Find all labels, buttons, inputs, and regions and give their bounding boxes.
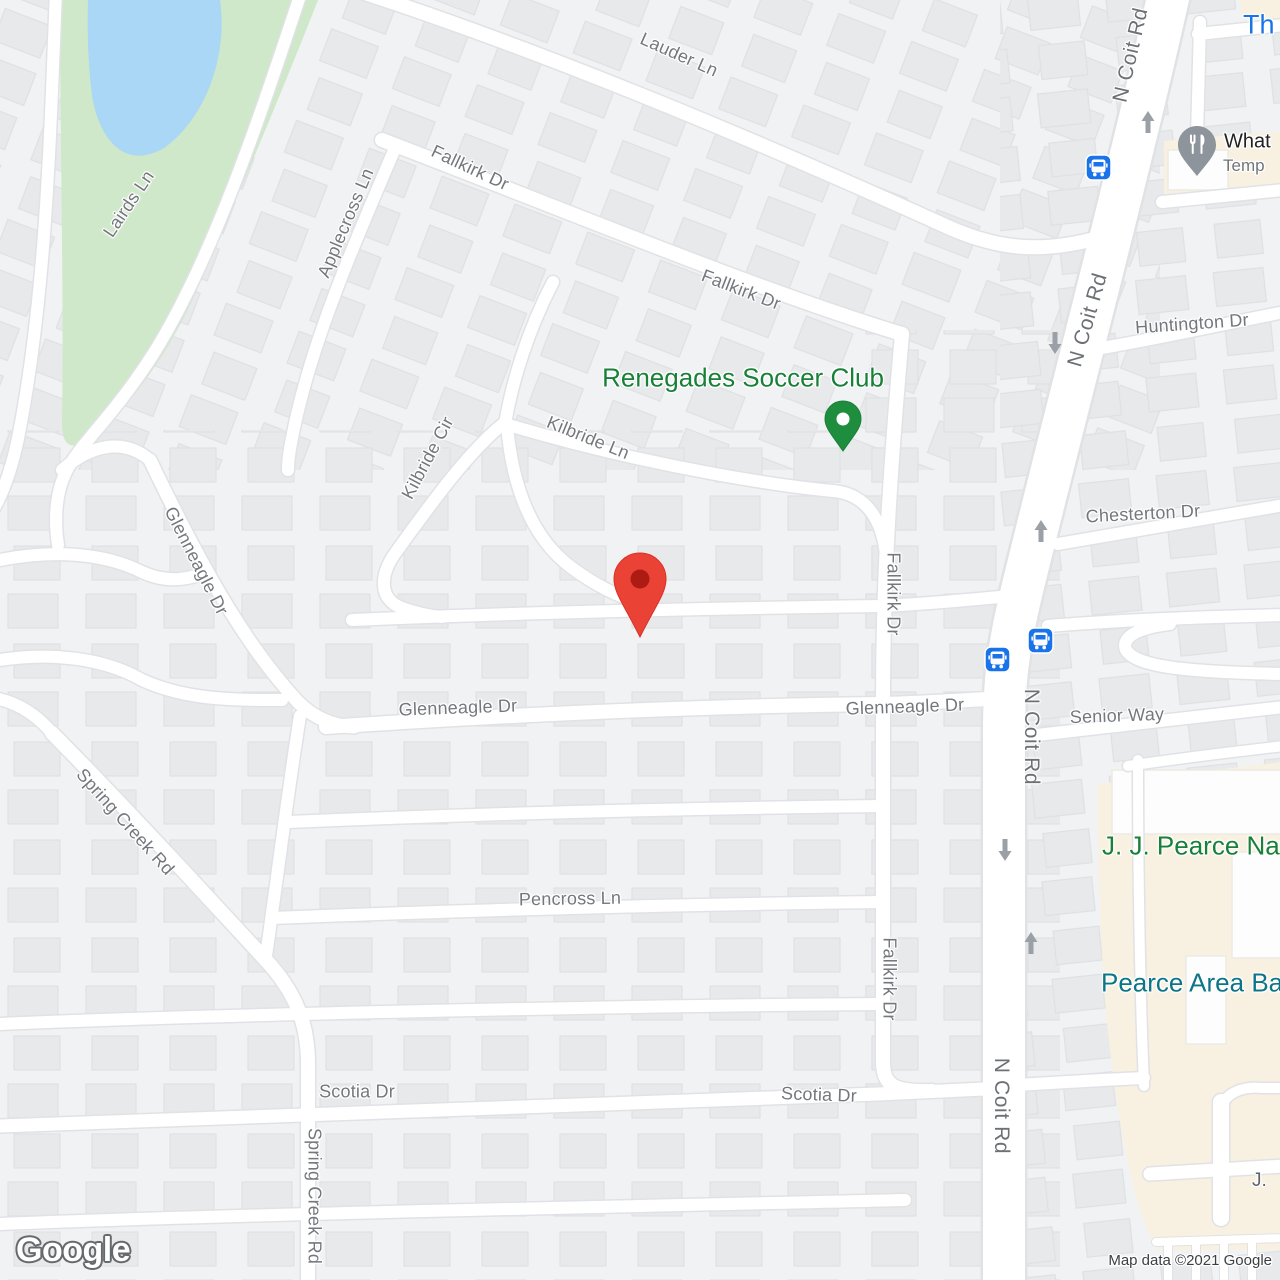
poi-label-renegades-soccer-club[interactable]: Renegades Soccer Club xyxy=(602,363,884,394)
poi-label-pearce-natatorium[interactable]: J. J. Pearce Natat xyxy=(1102,831,1280,862)
street-label-scotia-dr-west: Scotia Dr xyxy=(319,1082,395,1103)
street-label-pencross-ln: Pencross Ln xyxy=(519,888,622,911)
bus-stop-icon[interactable] xyxy=(1085,154,1112,186)
poi-label-truncated-top-right[interactable]: Th xyxy=(1243,10,1275,41)
poi-label-restaurant-name[interactable]: What xyxy=(1224,131,1271,154)
poi-label-pearce-area[interactable]: Pearce Area Ba xyxy=(1101,968,1280,999)
bus-stop-icon[interactable] xyxy=(1027,627,1054,659)
map-viewport[interactable]: Lauder Ln Fallkirk Dr Fallkirk Dr Applec… xyxy=(0,0,1280,1280)
street-label-scotia-dr-east: Scotia Dr xyxy=(781,1083,858,1107)
map-canvas xyxy=(0,0,1280,1280)
one-way-arrow-icon xyxy=(1034,519,1048,548)
street-label-senior-way: Senior Way xyxy=(1069,704,1164,728)
poi-label-school-truncated: J. xyxy=(1252,1170,1267,1192)
street-label-fallkirk-dr-vert-upper: Fallkirk Dr xyxy=(883,552,904,635)
street-label-glenneagle-dr-east: Glenneagle Dr xyxy=(845,694,964,719)
green-pin-icon[interactable] xyxy=(824,400,862,452)
one-way-arrow-icon xyxy=(998,833,1012,862)
street-label-fallkirk-dr-vert-lower: Fallkirk Dr xyxy=(879,937,900,1020)
street-label-n-coit-rd-mid: N Coit Rd xyxy=(1019,689,1043,785)
map-attribution: Map data ©2021 Google xyxy=(1108,1252,1272,1269)
red-pin-icon[interactable] xyxy=(613,552,667,638)
restaurant-pin-icon[interactable] xyxy=(1177,125,1217,177)
google-logo[interactable]: Google xyxy=(16,1231,130,1270)
one-way-arrow-icon xyxy=(1141,110,1155,139)
bus-stop-icon[interactable] xyxy=(984,646,1011,678)
poi-label-restaurant-status: Temp xyxy=(1223,156,1265,176)
one-way-arrow-icon xyxy=(1024,931,1038,960)
street-label-glenneagle-dr-mid: Glenneagle Dr xyxy=(398,695,517,720)
street-label-n-coit-rd-bottom: N Coit Rd xyxy=(989,1058,1013,1154)
street-label-spring-creek-rd-vert: Spring Creek Rd xyxy=(304,1128,325,1264)
one-way-arrow-icon xyxy=(1048,326,1062,355)
